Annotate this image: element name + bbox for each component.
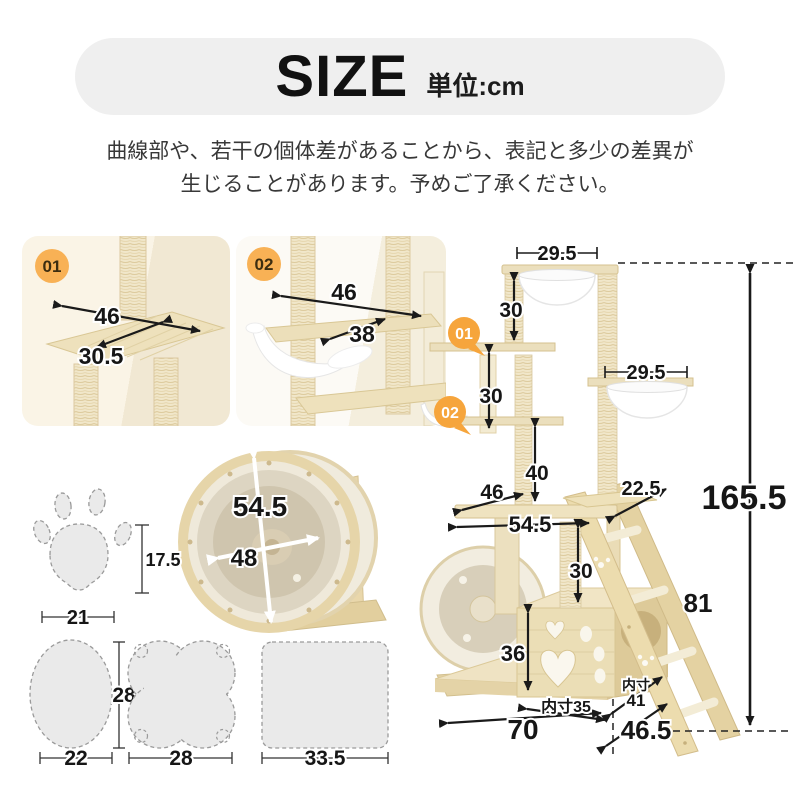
detail-photo-01-platform: 46 30.5 01 (22, 236, 230, 426)
dim-label-wheel-outer: 54.5 (233, 491, 288, 522)
dim-label-mat-width: 33.5 (305, 747, 346, 770)
paw-toe-hole (595, 669, 606, 684)
dim-ladder-length: 81 (684, 588, 713, 618)
oval-shape (30, 640, 112, 748)
mat-plate-diagram: 33.5 (256, 638, 396, 770)
second-platform (430, 343, 555, 351)
dim-total-height: 165.5 (701, 479, 786, 517)
top-capsule-rim (519, 270, 595, 281)
dim-capsule-width: 29.5 (627, 362, 666, 384)
third-platform (452, 417, 563, 425)
tower-badge-02: 02 (434, 396, 471, 435)
wheel-hole (293, 574, 301, 582)
caution-line-2: 生じることがあります。予めご了承ください。 (0, 169, 800, 202)
dim-step-depth: 22.5 (622, 478, 661, 500)
wheel-detail-illustration: 54.5 48 (172, 426, 400, 642)
platform-detail-illustration: 46 30.5 01 (22, 236, 230, 426)
dim-label-clover-width: 28 (169, 747, 193, 770)
dim-label-oval-width: 22 (64, 747, 87, 770)
paw-plate-diagram: 17.5 21 (20, 473, 185, 633)
caution-line-1: 曲線部や、若干の個体差があることから、表記と多少の差異が (0, 136, 800, 169)
clover-center (144, 657, 226, 739)
paw-toe-hole (580, 626, 592, 642)
dim-box-inner-front: 内寸35 (541, 697, 591, 716)
clover-plate-diagram: 28 (126, 638, 244, 770)
paw-shape (31, 488, 135, 590)
dim-base-width: 70 (507, 714, 538, 745)
size-title: SIZE (275, 48, 408, 106)
size-infographic-page: { "header": { "title": "SIZE", "unit_lab… (0, 0, 800, 800)
dim-label-depth: 30.5 (79, 343, 124, 369)
unit-label: 単位:cm (426, 66, 524, 103)
scratch-post (154, 358, 178, 426)
badge-01-label: 01 (43, 257, 62, 276)
dim-label-wheel-inner: 48 (231, 545, 258, 572)
caution-note: 曲線部や、若干の個体差があることから、表記と多少の差異が 生じることがあります。… (0, 136, 800, 201)
cat-tower-diagram: 01 02 29.5 30 30 29.5 40 46 54.5 22.5 16… (415, 235, 800, 769)
scratch-post (120, 236, 146, 320)
dim-box-inner-side-value: 41 (627, 691, 646, 710)
dim-platform-depth: 46 (480, 481, 503, 504)
dim-box-height: 36 (501, 641, 525, 666)
dim-platform-width: 54.5 (509, 512, 552, 537)
dim-label-depth: 38 (349, 321, 375, 347)
badge-02-label: 02 (255, 255, 274, 274)
scratch-post (74, 364, 98, 426)
dim-label-width: 46 (331, 279, 357, 305)
dim-label-paw-width: 21 (67, 607, 89, 629)
dim-mid-post: 30 (479, 385, 502, 408)
dim-label-width: 46 (94, 303, 120, 329)
dim-top-post: 30 (499, 299, 522, 322)
tower-badge-01-label: 01 (455, 326, 473, 343)
dim-top-width: 29.5 (538, 243, 577, 265)
mat-shape (262, 642, 388, 748)
size-banner: SIZE 単位:cm (75, 38, 725, 115)
dim-base-depth: 46.5 (621, 715, 672, 745)
tower-badge-02-label: 02 (441, 405, 459, 422)
hammock-edge (246, 323, 264, 333)
dim-third-post: 40 (525, 462, 548, 485)
dim-label-paw-height: 17.5 (145, 550, 180, 570)
dim-lower-post: 30 (569, 560, 592, 583)
paw-toe-hole (594, 647, 605, 662)
